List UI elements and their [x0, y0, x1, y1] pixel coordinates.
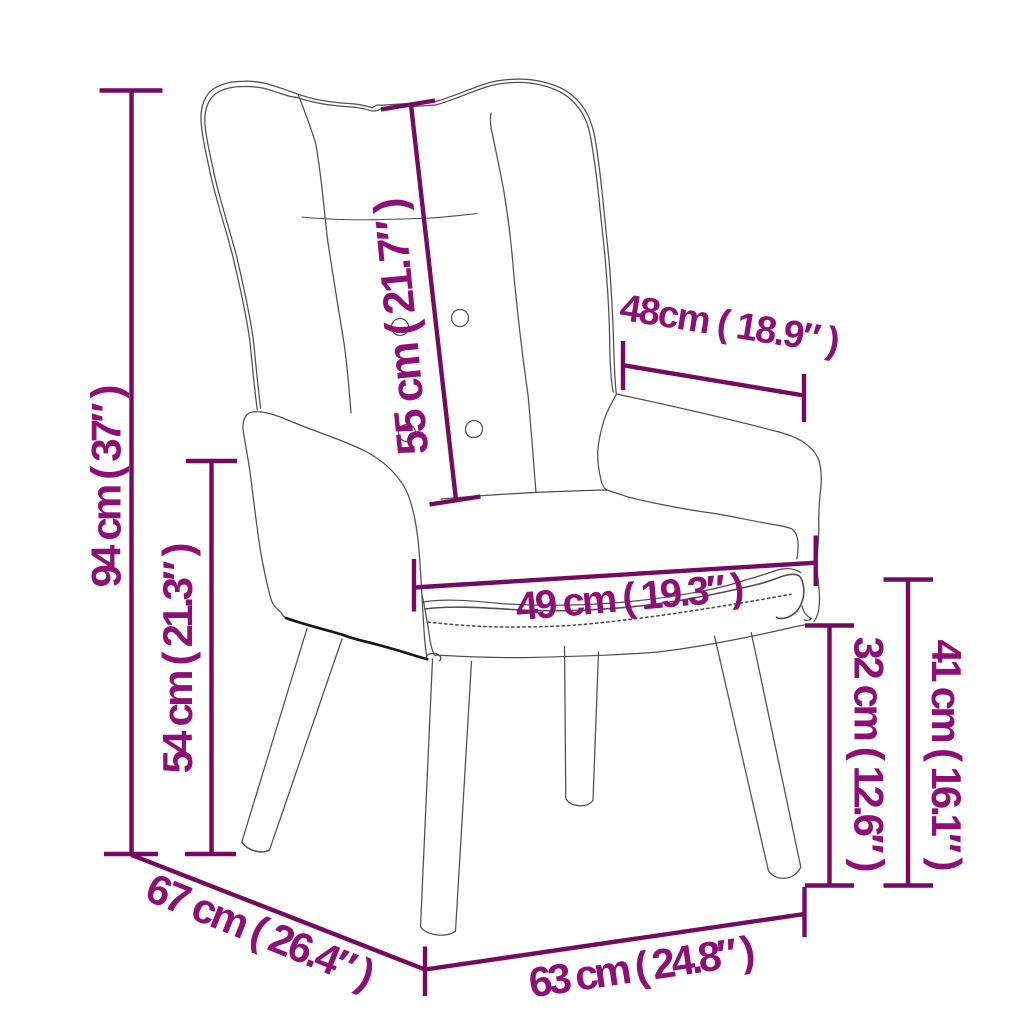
- svg-text:41 cm ( 16.1″ ): 41 cm ( 16.1″ ): [923, 640, 970, 872]
- svg-text:94 cm ( 37″ ): 94 cm ( 37″ ): [83, 385, 130, 588]
- svg-text:32 cm ( 12.6″ ): 32 cm ( 12.6″ ): [846, 637, 893, 873]
- svg-text:54 cm ( 21.3″ ): 54 cm ( 21.3″ ): [154, 543, 201, 774]
